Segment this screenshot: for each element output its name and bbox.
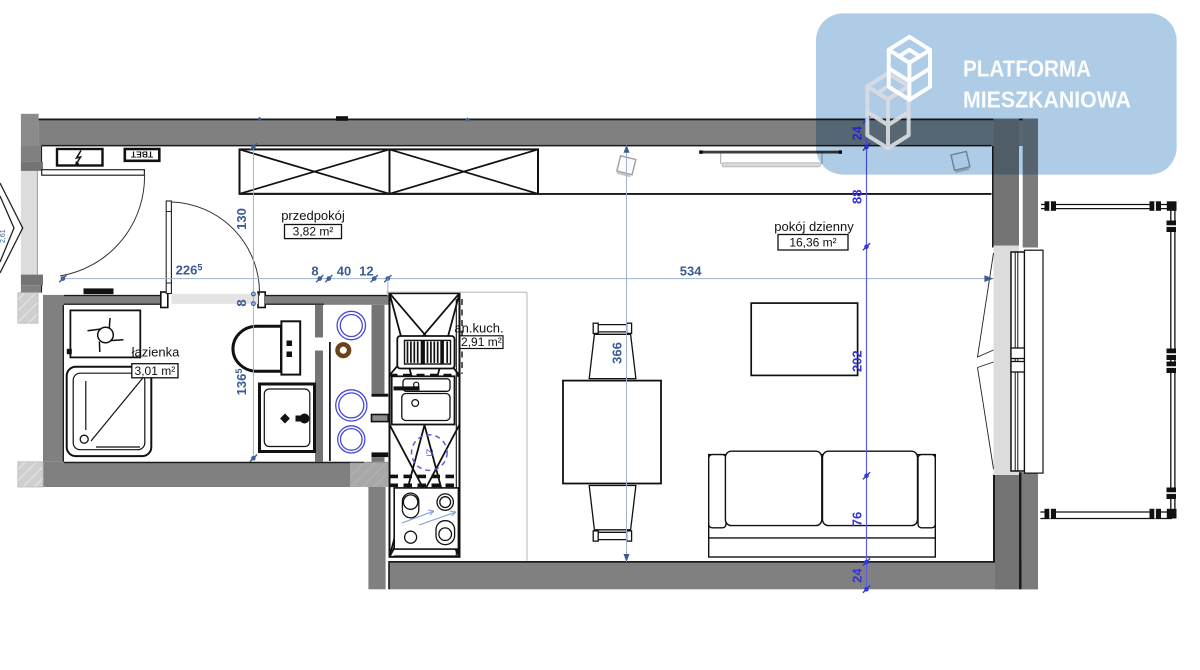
svg-text:Zl: Zl (425, 449, 435, 457)
svg-text:8: 8 (234, 299, 249, 306)
svg-text:24: 24 (850, 568, 865, 583)
svg-text:1365: 1365 (234, 369, 249, 396)
svg-text:130: 130 (234, 208, 249, 230)
svg-text:534: 534 (680, 264, 702, 279)
svg-text:88: 88 (850, 190, 865, 204)
svg-text:76: 76 (850, 512, 865, 526)
svg-text:3,01 m²: 3,01 m² (135, 364, 176, 378)
svg-text:3,82 m²: 3,82 m² (293, 225, 334, 239)
svg-text:łazienka: łazienka (132, 345, 180, 360)
svg-text:an.kuch.: an.kuch. (454, 321, 503, 336)
svg-text:16,36 m²: 16,36 m² (789, 236, 836, 250)
svg-text:2265: 2265 (176, 263, 203, 278)
svg-text:przedpokój: przedpokój (281, 208, 345, 223)
svg-text:12: 12 (359, 264, 373, 279)
svg-text:MIESZKANIOWA: MIESZKANIOWA (963, 87, 1131, 113)
svg-text:202: 202 (850, 350, 865, 372)
svg-text:2,91 m²: 2,91 m² (461, 335, 502, 349)
svg-text:366: 366 (610, 342, 625, 364)
svg-text:pokój dzienny: pokój dzienny (774, 219, 854, 234)
svg-text:8: 8 (311, 264, 318, 279)
svg-text:2,61: 2,61 (0, 229, 7, 243)
svg-text:40: 40 (337, 264, 351, 279)
svg-text:TBET: TBET (130, 150, 153, 160)
svg-text:PLATFORMA: PLATFORMA (963, 56, 1091, 82)
